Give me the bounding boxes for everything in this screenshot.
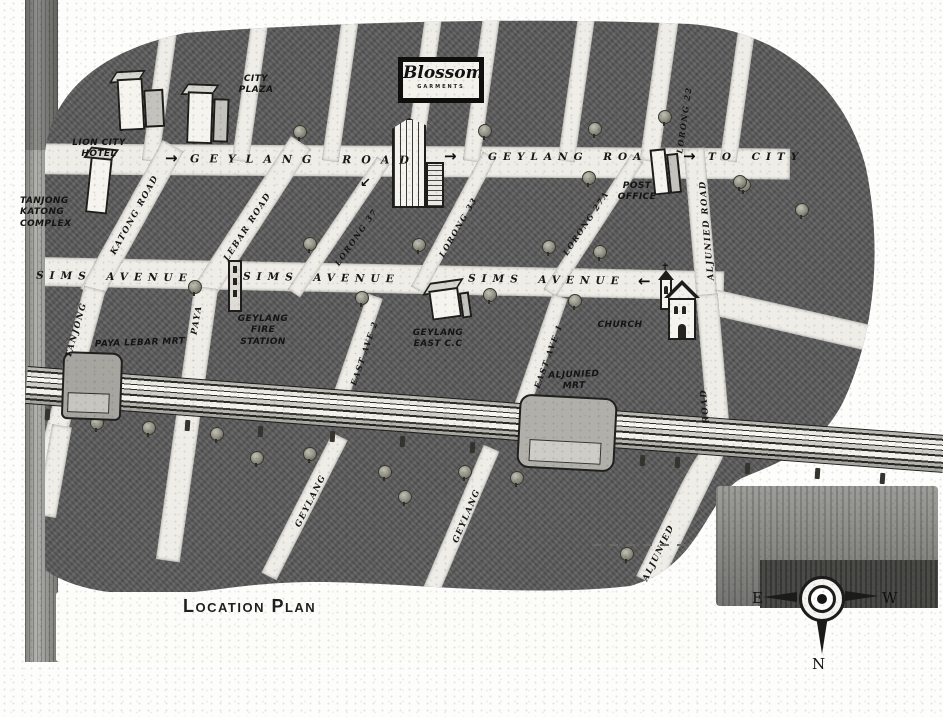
tree-icon xyxy=(458,465,472,479)
label-aljunied-mrt: ALJUNIED MRT xyxy=(544,369,605,394)
rail-pillar-icon xyxy=(880,473,886,484)
label-geylang-fire-station: GEYLANG FIRE STATION xyxy=(230,314,296,348)
tree-icon xyxy=(478,124,492,138)
building-fire-station-tower xyxy=(226,258,246,314)
rail-pillar-icon xyxy=(258,426,264,437)
right-arrow-icon: → xyxy=(165,149,178,167)
tree-icon xyxy=(412,238,426,252)
label-line: PLAZA xyxy=(239,85,274,95)
tree-icon xyxy=(542,240,556,254)
label-city-plaza: CITY PLAZA xyxy=(235,74,277,97)
rail-pillar-icon xyxy=(400,436,406,447)
tree-icon xyxy=(303,237,317,251)
tree-icon xyxy=(293,125,307,139)
tree-icon xyxy=(142,421,156,435)
right-arrow-icon: → xyxy=(683,147,696,165)
rail-pillar-icon xyxy=(640,455,646,466)
tree-icon xyxy=(658,110,672,124)
label-line: GEYLANG xyxy=(413,328,463,338)
mrt-station-paya-lebar xyxy=(61,351,123,421)
label-line: MRT xyxy=(563,381,586,392)
label-tanjong-katong-complex: TANJONG KATONG COMPLEX xyxy=(20,196,92,230)
rail-pillar-icon xyxy=(745,463,751,474)
road-sims-avenue-east xyxy=(697,286,883,353)
blossom-signboard: Blossom GARMENTS xyxy=(398,57,484,103)
label-geylang-east-cc: GEYLANG EAST C.C xyxy=(405,328,471,351)
label-line: CITY xyxy=(244,74,268,84)
label-line: HOTEL xyxy=(81,149,116,159)
label-church: CHURCH xyxy=(594,320,646,331)
label-line: FIRE xyxy=(251,325,275,335)
compass-west-spike xyxy=(845,591,879,601)
tree-icon xyxy=(398,490,412,504)
tree-icon xyxy=(303,447,317,461)
tree-icon xyxy=(620,547,634,561)
label-line: TANJONG xyxy=(20,196,69,206)
tree-icon xyxy=(250,451,264,465)
station-front-face xyxy=(67,392,110,413)
label-post-office: POST OFFICE xyxy=(612,181,662,204)
label-line: ALJUNIED xyxy=(548,369,599,381)
page-title: Location Plan xyxy=(183,596,316,617)
rail-pillar-icon xyxy=(675,457,681,468)
compass-label-west: W xyxy=(882,589,897,607)
left-arrow-icon: ← xyxy=(638,272,651,290)
blossom-sign-name: Blossom xyxy=(403,62,479,84)
tree-icon xyxy=(210,427,224,441)
rail-pillar-icon xyxy=(185,420,191,431)
compass-label-north: N xyxy=(812,655,825,673)
building-church: ✝ xyxy=(652,262,708,346)
road-label-geylang-roa: GEYLANG ROA xyxy=(488,151,647,163)
tree-icon xyxy=(795,203,809,217)
label-line: EAST C.C xyxy=(414,339,463,349)
label-lion-city-hotel: LION CITY HOTEL xyxy=(55,138,143,161)
right-arrow-icon: → xyxy=(444,147,457,165)
tree-icon xyxy=(355,291,369,305)
tree-icon xyxy=(510,471,524,485)
tree-icon xyxy=(593,245,607,259)
building-lion-city-hotel xyxy=(110,69,170,144)
tree-icon xyxy=(688,551,702,565)
label-line: KATONG xyxy=(20,207,64,217)
mrt-station-aljunied xyxy=(516,393,618,472)
label-line: POST xyxy=(623,181,651,191)
rail-pillar-icon xyxy=(330,431,336,442)
tree-icon xyxy=(568,294,582,308)
road-lorong-22 xyxy=(640,13,679,162)
road-label-to-city: TO CITY xyxy=(708,151,804,163)
church-door xyxy=(678,324,686,338)
label-line: COMPLEX xyxy=(20,219,71,229)
tree-icon xyxy=(733,175,747,189)
road-label-geylang-road: GEYLANG ROAD xyxy=(190,152,419,167)
building-city-plaza xyxy=(182,81,234,151)
dashed-line xyxy=(592,544,688,546)
tree-icon xyxy=(582,171,596,185)
road-north-6 xyxy=(558,14,595,163)
rail-pillar-icon xyxy=(815,468,821,479)
tree-icon xyxy=(378,465,392,479)
road-north-3 xyxy=(322,14,359,163)
blossom-sign-subtext: GARMENTS xyxy=(403,84,479,90)
road-north-8 xyxy=(720,14,757,163)
label-line: OFFICE xyxy=(618,192,656,202)
station-front-face xyxy=(528,439,601,465)
location-plan-band xyxy=(56,592,708,662)
label-line: GEYLANG xyxy=(238,314,288,324)
compass-label-east: E xyxy=(752,589,763,607)
turn-arrow-icon: ↙ xyxy=(360,176,371,191)
rail-pillar-icon xyxy=(470,442,476,453)
tree-icon xyxy=(483,288,497,302)
compass-hub xyxy=(817,594,827,604)
tree-icon xyxy=(588,122,602,136)
label-line: STATION xyxy=(240,337,286,347)
compass-east-spike xyxy=(763,592,797,602)
label-line: LION CITY xyxy=(72,138,126,148)
rail-pillar-icon xyxy=(45,409,51,420)
